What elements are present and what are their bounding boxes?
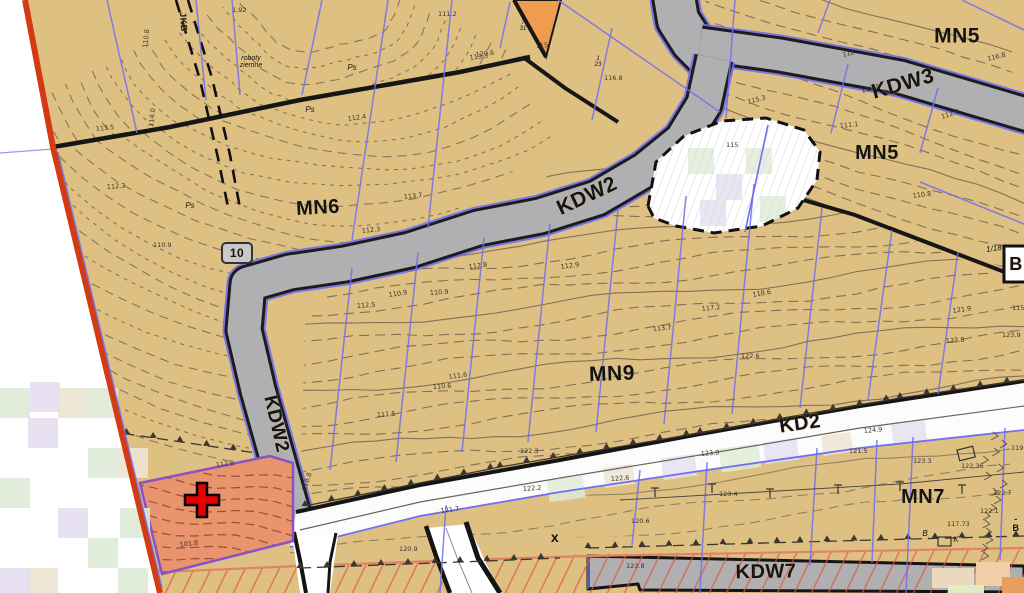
spot-height: 111.5 [377, 410, 396, 419]
basemap-patch [1002, 577, 1024, 593]
spot-height: 1,92 [232, 6, 246, 14]
spot-height: 117.73 [947, 520, 970, 528]
spot-height: 115 [726, 141, 738, 149]
route-number-box [222, 243, 252, 263]
spot-height: 123.3 [913, 457, 932, 465]
spot-height: 112.5 [357, 301, 376, 310]
basemap-patch [948, 585, 984, 593]
spot-height: 113.7 [652, 323, 671, 333]
spot-height: 121.5 [849, 447, 868, 455]
spot-height: 123.8 [946, 336, 965, 345]
spot-height: 122.6 [611, 474, 630, 483]
spot-height: 122.2 [523, 484, 542, 493]
spot-height: 116.8 [604, 74, 623, 82]
spot-height: 122.3 [520, 447, 539, 455]
spot-height: 122.7 [993, 489, 1012, 497]
spot-height: 119.9 [1011, 444, 1024, 452]
spot-height: 123.9 [1002, 331, 1021, 339]
spot-height: 111.2 [438, 10, 457, 18]
spot-height: 123.8 [626, 562, 645, 570]
spot-height: 122.1 [980, 507, 999, 515]
spot-height: 124.9 [863, 425, 882, 435]
map-canvas: 110.8114.0113.5112.3110.9101.8111.8118.8… [0, 0, 1024, 593]
spot-height: 115 [535, 41, 548, 50]
spot-height: 120.6 [631, 517, 650, 525]
spot-height: 122.6 [741, 352, 760, 360]
map-viewport[interactable]: 110.8114.0113.5112.3110.9101.8111.8118.8… [0, 0, 1024, 593]
spot-height: 123.8 [700, 448, 719, 458]
spot-height: 123.4 [719, 490, 738, 498]
spot-height: 110.9 [430, 288, 449, 297]
spot-height: 120.9 [399, 545, 418, 553]
spot-height: 110.9 [153, 241, 172, 249]
spot-height: 115.6 [1012, 304, 1024, 312]
boundary-letter-box [1004, 246, 1024, 282]
spot-height: 112.3 [107, 182, 126, 191]
spot-height: 122.36 [961, 462, 984, 470]
spot-height: 110.6 [433, 382, 452, 391]
